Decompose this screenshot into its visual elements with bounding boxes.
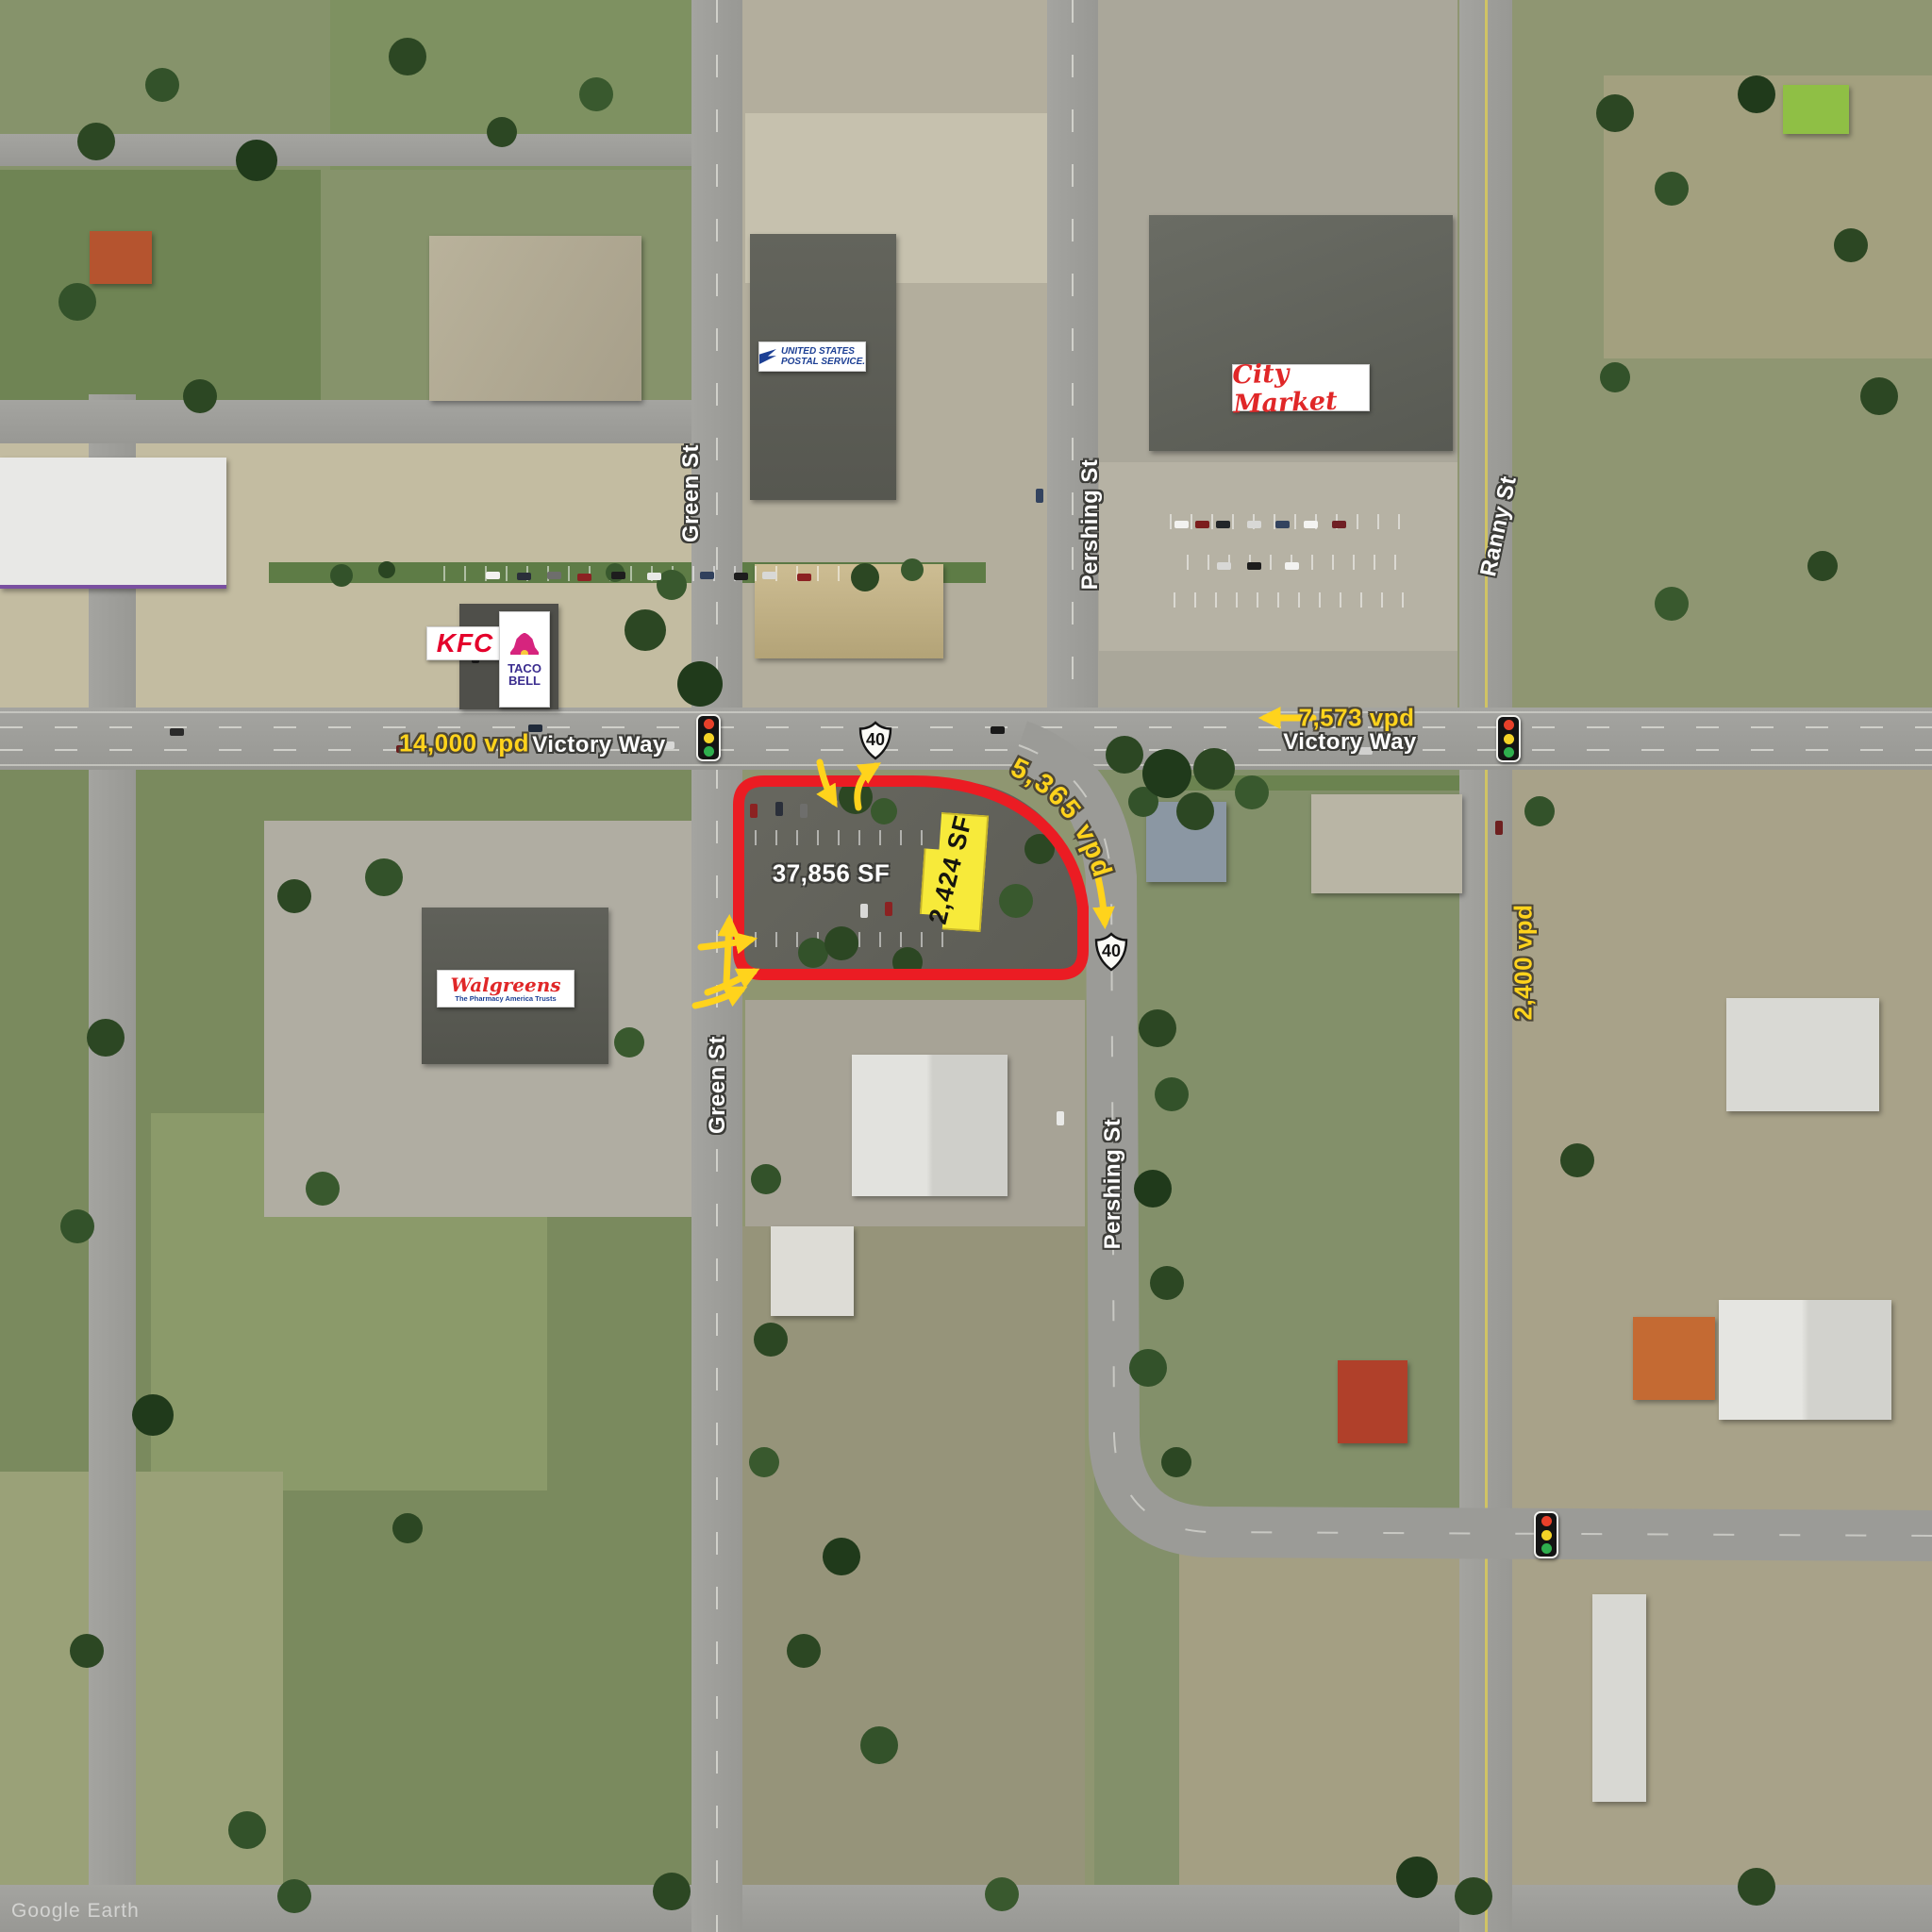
street-label-green-st-south: Green St [705, 1036, 731, 1134]
access-arrow [708, 972, 754, 992]
traffic-count-victory-west: 14,000 vpd [399, 729, 529, 758]
street-label-green-st-north: Green St [678, 444, 705, 542]
access-arrow [726, 921, 729, 983]
street-label-victory-way-west: Victory Way [532, 732, 666, 758]
signal-green [1504, 747, 1514, 758]
traffic-light-ranny-victory [1496, 715, 1521, 762]
signal-red [1504, 720, 1514, 730]
traffic-count-victory-east: 7,573 vpd [1298, 704, 1414, 733]
signal-yellow [1504, 734, 1514, 744]
google-earth-watermark: Google Earth [11, 1900, 140, 1923]
route-number: 40 [866, 730, 885, 749]
signal-green [704, 746, 714, 757]
street-label-victory-way-east: Victory Way [1283, 729, 1417, 756]
access-arrow [695, 990, 741, 1006]
annotation-overlay: 5,365 vpd [0, 0, 1932, 1932]
traffic-count-pershing-curve: 5,365 vpd [1007, 753, 1118, 882]
street-label-pershing-st-south: Pershing St [1100, 1119, 1126, 1250]
signal-yellow [704, 733, 714, 743]
parcel-site-area-label: 37,856 SF [773, 859, 890, 889]
signal-green [1541, 1543, 1552, 1554]
us-route-40-shield-north: 40 [858, 721, 893, 760]
street-label-pershing-st-north: Pershing St [1077, 459, 1104, 591]
aerial-map: KFC TACO BELL UNITED STATES POSTAL SERVI… [0, 0, 1932, 1932]
traffic-flow-arrow [1098, 877, 1105, 923]
route-number: 40 [1102, 941, 1121, 960]
signal-red [1541, 1516, 1552, 1526]
traffic-count-ranny: 2,400 vpd [1509, 904, 1539, 1020]
signal-yellow [1541, 1530, 1552, 1541]
signal-red [704, 719, 714, 729]
us-route-40-shield-south: 40 [1093, 932, 1129, 972]
traffic-light-ranny-south [1534, 1511, 1558, 1558]
traffic-light-green-victory [696, 714, 721, 761]
